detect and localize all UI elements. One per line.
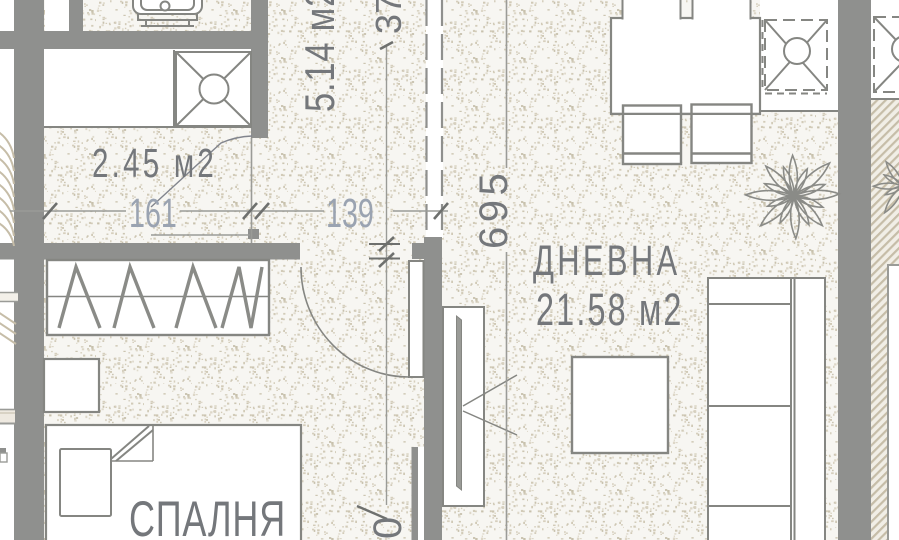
svg-text:21.58 м2: 21.58 м2 xyxy=(536,286,684,335)
svg-text:161: 161 xyxy=(129,191,177,236)
svg-text:37: 37 xyxy=(368,0,409,34)
svg-text:139: 139 xyxy=(326,191,374,236)
svg-text:2.45 м2: 2.45 м2 xyxy=(92,140,217,186)
svg-text:ДНЕВНА: ДНЕВНА xyxy=(533,236,680,284)
svg-text:0: 0 xyxy=(366,517,410,539)
svg-text:СПАЛНЯ: СПАЛНЯ xyxy=(129,492,286,540)
svg-text:695: 695 xyxy=(472,169,516,249)
svg-text:5.14 м2: 5.14 м2 xyxy=(297,0,344,112)
